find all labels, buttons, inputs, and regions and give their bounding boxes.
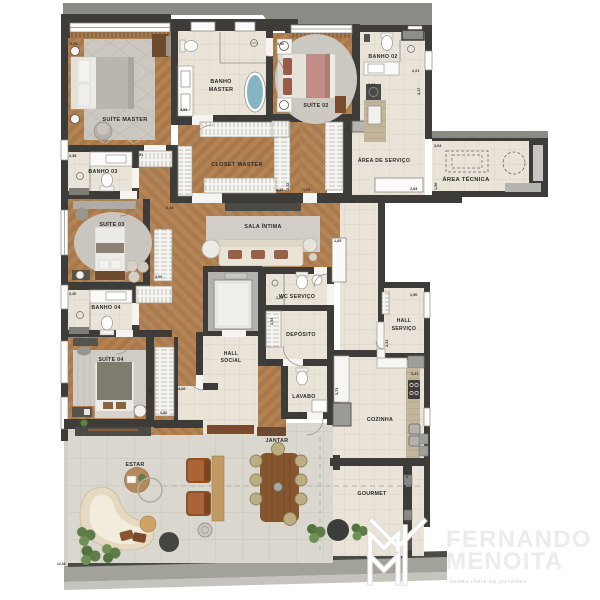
svg-text:BANHO 02: BANHO 02: [368, 54, 397, 60]
svg-text:1,65: 1,65: [303, 188, 310, 192]
svg-text:1,26: 1,26: [291, 415, 298, 419]
svg-text:SUÍTE 02: SUÍTE 02: [303, 101, 328, 109]
svg-text:4,17: 4,17: [417, 88, 421, 95]
svg-text:IMOBILIÁRIA DE AUTORES: IMOBILIÁRIA DE AUTORES: [450, 578, 527, 584]
svg-text:SOCIAL: SOCIAL: [221, 358, 242, 364]
svg-text:SALA ÍNTIMA: SALA ÍNTIMA: [244, 222, 281, 230]
svg-text:2,54: 2,54: [270, 317, 274, 325]
svg-text:1,68: 1,68: [137, 326, 141, 333]
svg-text:4,33: 4,33: [276, 188, 283, 192]
svg-text:WC SERVIÇO: WC SERVIÇO: [279, 294, 315, 300]
svg-text:2,83: 2,83: [410, 187, 417, 191]
svg-text:CLOSET MASTER: CLOSET MASTER: [211, 162, 263, 168]
svg-text:2,16: 2,16: [368, 83, 375, 87]
svg-text:4,08: 4,08: [178, 387, 185, 391]
svg-text:2,30: 2,30: [69, 292, 76, 296]
svg-text:HALL: HALL: [224, 351, 239, 357]
svg-text:2,25: 2,25: [276, 296, 283, 300]
svg-text:GOURMET: GOURMET: [357, 491, 387, 497]
svg-text:ÁREA DE SERVIÇO: ÁREA DE SERVIÇO: [358, 157, 410, 164]
svg-text:2,33: 2,33: [385, 340, 389, 347]
svg-text:3,41: 3,41: [411, 372, 418, 376]
svg-text:2,90: 2,90: [277, 42, 284, 46]
svg-text:2,10: 2,10: [405, 471, 409, 478]
svg-text:3,68: 3,68: [70, 42, 77, 46]
svg-text:SUÍTE MASTER: SUÍTE MASTER: [102, 115, 147, 123]
svg-text:3,80: 3,80: [160, 411, 167, 415]
svg-text:6,15: 6,15: [166, 206, 173, 210]
svg-text:3,00: 3,00: [155, 275, 162, 279]
svg-text:2,21: 2,21: [412, 69, 419, 73]
svg-text:12,04: 12,04: [57, 562, 66, 566]
svg-text:3,73: 3,73: [335, 388, 339, 395]
svg-text:HALL: HALL: [397, 318, 412, 324]
svg-text:SUÍTE 03: SUÍTE 03: [99, 220, 124, 228]
svg-text:BANHO: BANHO: [210, 79, 231, 85]
svg-text:LAVABO: LAVABO: [292, 394, 315, 400]
svg-text:1,65: 1,65: [334, 239, 341, 243]
svg-text:MENOITA: MENOITA: [446, 548, 563, 575]
svg-text:JANTAR: JANTAR: [266, 438, 289, 444]
svg-text:DEPÓSITO: DEPÓSITO: [286, 330, 316, 338]
svg-text:2,65: 2,65: [346, 126, 350, 133]
svg-text:SERVIÇO: SERVIÇO: [392, 326, 417, 332]
svg-text:2,32: 2,32: [286, 183, 290, 190]
svg-text:1,90: 1,90: [434, 183, 438, 190]
svg-text:COZINHA: COZINHA: [367, 417, 393, 423]
svg-text:3,04: 3,04: [434, 144, 442, 148]
svg-text:4,00: 4,00: [148, 388, 152, 395]
svg-text:BANHO 04: BANHO 04: [91, 305, 120, 311]
svg-text:2,18: 2,18: [268, 360, 275, 364]
svg-text:4,28: 4,28: [63, 123, 67, 130]
svg-text:SUÍTE 04: SUÍTE 04: [98, 355, 123, 363]
svg-text:BANHO 03: BANHO 03: [88, 169, 117, 175]
svg-text:ÁREA TÉCNICA: ÁREA TÉCNICA: [442, 175, 490, 183]
svg-text:ESTAR: ESTAR: [125, 462, 144, 468]
svg-text:2,38: 2,38: [69, 154, 76, 158]
svg-text:1,56: 1,56: [410, 293, 417, 297]
svg-text:1,91: 1,91: [136, 153, 143, 157]
svg-text:3,53: 3,53: [180, 108, 187, 112]
svg-text:MASTER: MASTER: [209, 87, 234, 93]
